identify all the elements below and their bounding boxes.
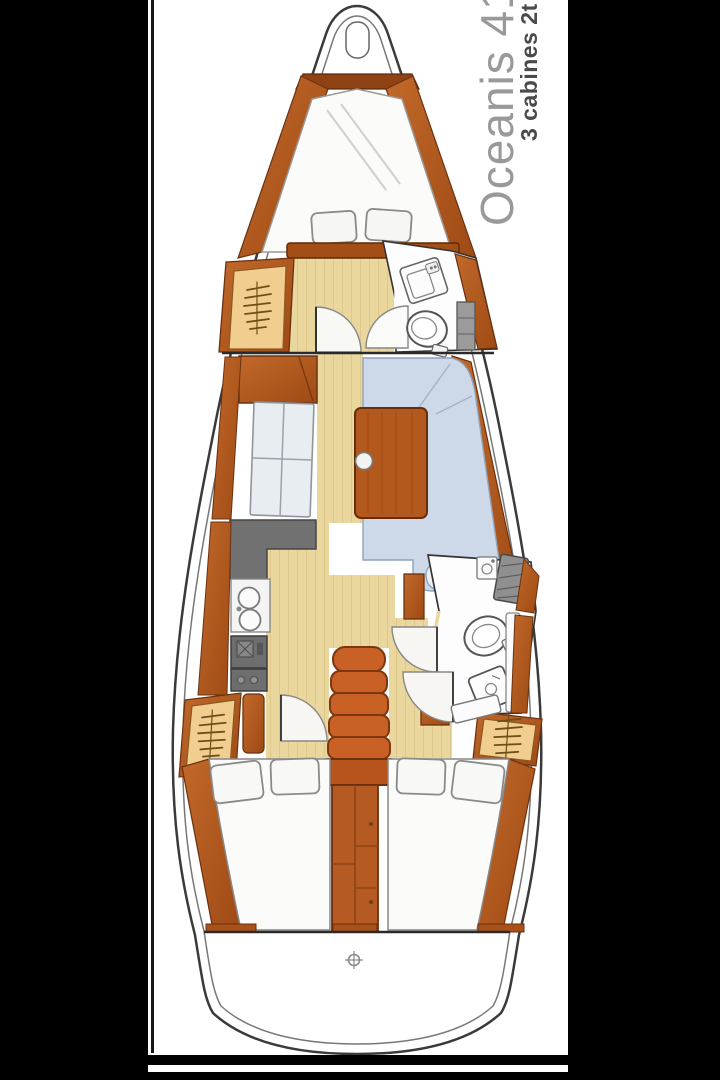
berth-pillow (396, 758, 445, 795)
berth-pillow (210, 760, 264, 804)
salon-settee-port (250, 402, 314, 517)
nav-seat (243, 694, 264, 753)
engine-compartment (332, 785, 378, 931)
berth-pillow (365, 209, 412, 243)
galley-double-sink (231, 579, 270, 632)
page-edge-line (151, 0, 154, 1053)
table-knob (356, 453, 373, 470)
forward-cabin (238, 74, 476, 258)
galley-stove (231, 636, 267, 668)
salon-table (355, 408, 427, 518)
black-bar-right (568, 0, 720, 1080)
hanging-locker-port-forward (219, 258, 294, 352)
salon-port (212, 356, 317, 519)
aft-head-sink (477, 557, 497, 579)
boat-model-title: Oceanis 41 (474, 0, 520, 226)
berth-pillow (451, 760, 505, 804)
head-entry-cabinet (404, 574, 424, 619)
bottom-rule-thin (148, 1072, 570, 1080)
boat-layout-subtitle: 3 cabines 2t (516, 3, 542, 141)
galley-oven (231, 669, 267, 691)
berth-pillow (270, 758, 319, 795)
anchor-locker (346, 22, 369, 58)
bottom-rule-thick (148, 1055, 570, 1065)
scanned-brochure-page: Oceanis 41 3 cabines 2t (0, 0, 720, 1080)
black-bar-left (0, 0, 148, 1080)
forward-head-shelf (457, 302, 475, 350)
berth-pillow (311, 211, 357, 245)
port-cabinet (239, 356, 317, 403)
